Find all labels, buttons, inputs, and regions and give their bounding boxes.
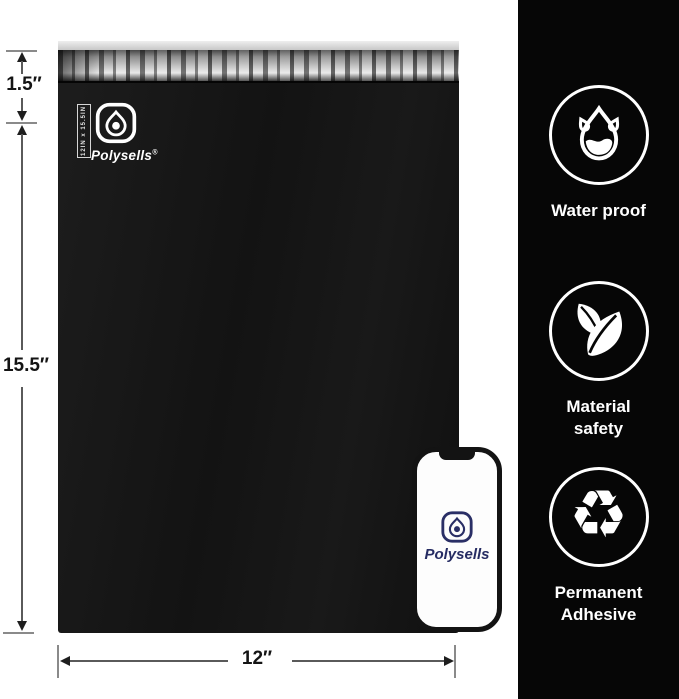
feature-permanent-adhesive: ♻ Permanent Adhesive (518, 467, 679, 626)
dim-line (21, 134, 23, 350)
water-drop-icon (560, 96, 638, 174)
icon-ring: ♻ (549, 467, 649, 567)
bag-adhesive-strip (58, 50, 459, 83)
phone-notch (439, 451, 475, 460)
polysells-logo-icon (94, 101, 138, 145)
phone-logo-icon (440, 510, 474, 544)
dim-arrow-left-icon (60, 656, 70, 666)
bag-brand-label: Polysells® (91, 148, 158, 163)
features-sidebar: Water proof Material safety ♻ Permanent … (518, 0, 679, 699)
product-infographic: 12IN x 15.5IN Polysells® 1.5″ 15.5″ 12″ (0, 0, 679, 699)
dim-line (70, 660, 228, 662)
feature-label: Material safety (540, 396, 658, 440)
flap-dimension-label: 1.5″ (0, 74, 48, 96)
icon-ring (549, 85, 649, 185)
dim-tick (3, 632, 34, 634)
phone-screen-content: Polysells (417, 510, 497, 563)
dim-tick (57, 645, 59, 678)
feature-material-safety: Material safety (518, 281, 679, 440)
dim-line (21, 387, 23, 621)
icon-ring (549, 281, 649, 381)
registered-mark: ® (152, 150, 157, 157)
bag-flap-edge (58, 41, 459, 50)
bag-brand-text: Polysells (91, 148, 152, 163)
phone-brand-label: Polysells (424, 546, 489, 563)
feature-water-proof: Water proof (518, 85, 679, 222)
dim-line (21, 61, 23, 74)
dim-arrow-down-icon (17, 111, 27, 121)
height-dimension-label: 15.5″ (0, 355, 55, 377)
phone-mockup: Polysells (412, 447, 502, 632)
feature-label: Water proof (540, 200, 658, 222)
dim-arrow-down-icon (17, 621, 27, 631)
dim-arrow-right-icon (444, 656, 454, 666)
dim-tick (454, 645, 456, 678)
dim-line (292, 660, 444, 662)
dim-tick (6, 122, 37, 124)
recycle-icon: ♻ (569, 482, 628, 548)
mailer-bag: 12IN x 15.5IN Polysells® (58, 41, 459, 633)
bag-size-tag: 12IN x 15.5IN (77, 104, 91, 158)
dim-line (21, 98, 23, 111)
leaves-icon (560, 292, 638, 370)
width-dimension-label: 12″ (228, 648, 286, 670)
feature-label: Permanent Adhesive (540, 582, 658, 626)
